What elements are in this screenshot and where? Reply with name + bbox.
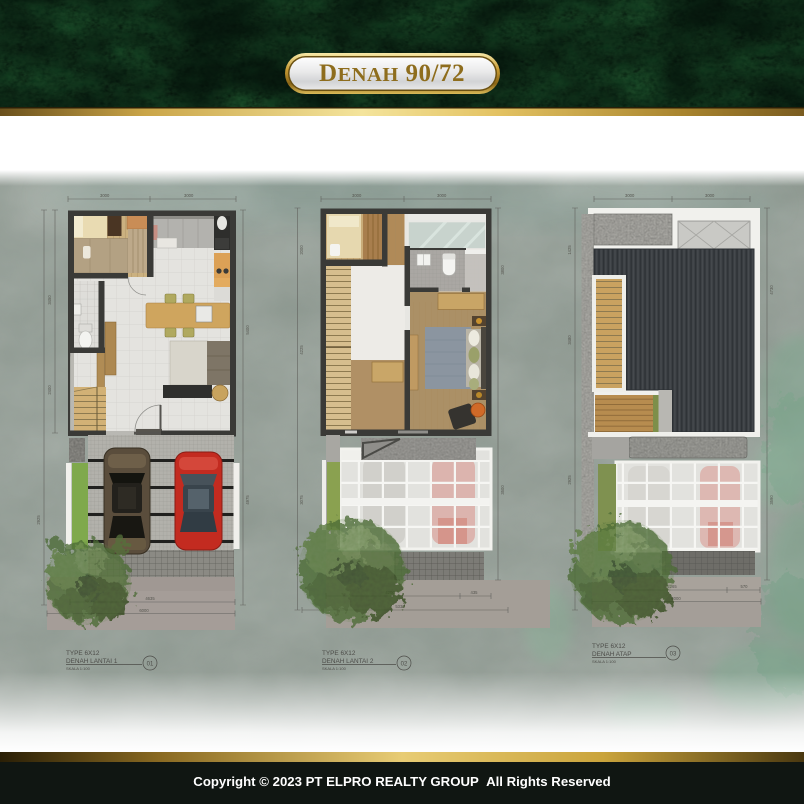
svg-text:4225: 4225	[299, 345, 304, 355]
svg-text:3000: 3000	[184, 193, 194, 198]
svg-text:6000: 6000	[139, 608, 149, 613]
svg-text:5400: 5400	[245, 325, 250, 335]
svg-text:6000: 6000	[671, 596, 681, 601]
svg-text:3450: 3450	[47, 295, 52, 305]
svg-text:DENAH 90/72: DENAH 90/72	[319, 60, 465, 87]
svg-text:01: 01	[147, 662, 154, 668]
svg-text:SKALA 1:100: SKALA 1:100	[592, 659, 617, 664]
svg-text:SKALA 1:100: SKALA 1:100	[322, 666, 347, 671]
svg-text:2925: 2925	[36, 515, 41, 525]
svg-text:3000: 3000	[100, 193, 110, 198]
svg-text:3000: 3000	[625, 193, 635, 198]
svg-text:4635: 4635	[145, 596, 155, 601]
svg-text:2000: 2000	[299, 245, 304, 255]
svg-text:2400: 2400	[47, 385, 52, 395]
svg-text:3075: 3075	[299, 495, 304, 505]
svg-text:DENAH LANTAI 2: DENAH LANTAI 2	[322, 658, 374, 665]
svg-text:4975: 4975	[245, 495, 250, 505]
svg-text:570: 570	[741, 584, 749, 589]
svg-text:1425: 1425	[567, 245, 572, 255]
svg-text:03: 03	[670, 652, 677, 658]
svg-text:SKALA 1:100: SKALA 1:100	[66, 666, 91, 671]
svg-text:3000: 3000	[437, 193, 447, 198]
svg-text:3500: 3500	[500, 485, 505, 495]
svg-text:3000: 3000	[352, 193, 362, 198]
svg-text:3480: 3480	[567, 335, 572, 345]
svg-text:4730: 4730	[769, 285, 774, 295]
svg-text:Copyright © 2023 PT ELPRO REAL: Copyright © 2023 PT ELPRO REALTY GROUP A…	[193, 774, 610, 789]
svg-text:TYPE 6X12: TYPE 6X12	[66, 650, 100, 657]
svg-text:5330: 5330	[395, 604, 405, 609]
svg-text:TYPE 6X12: TYPE 6X12	[322, 650, 356, 657]
svg-text:2925: 2925	[567, 475, 572, 485]
svg-text:02: 02	[401, 662, 408, 668]
svg-text:3590: 3590	[769, 495, 774, 505]
svg-text:435: 435	[471, 590, 479, 595]
svg-text:DENAH ATAP: DENAH ATAP	[592, 651, 632, 658]
svg-text:TYPE 6X12: TYPE 6X12	[592, 643, 626, 650]
svg-text:3000: 3000	[705, 193, 715, 198]
svg-text:DENAH LANTAI 1: DENAH LANTAI 1	[66, 658, 118, 665]
svg-text:3800: 3800	[500, 265, 505, 275]
